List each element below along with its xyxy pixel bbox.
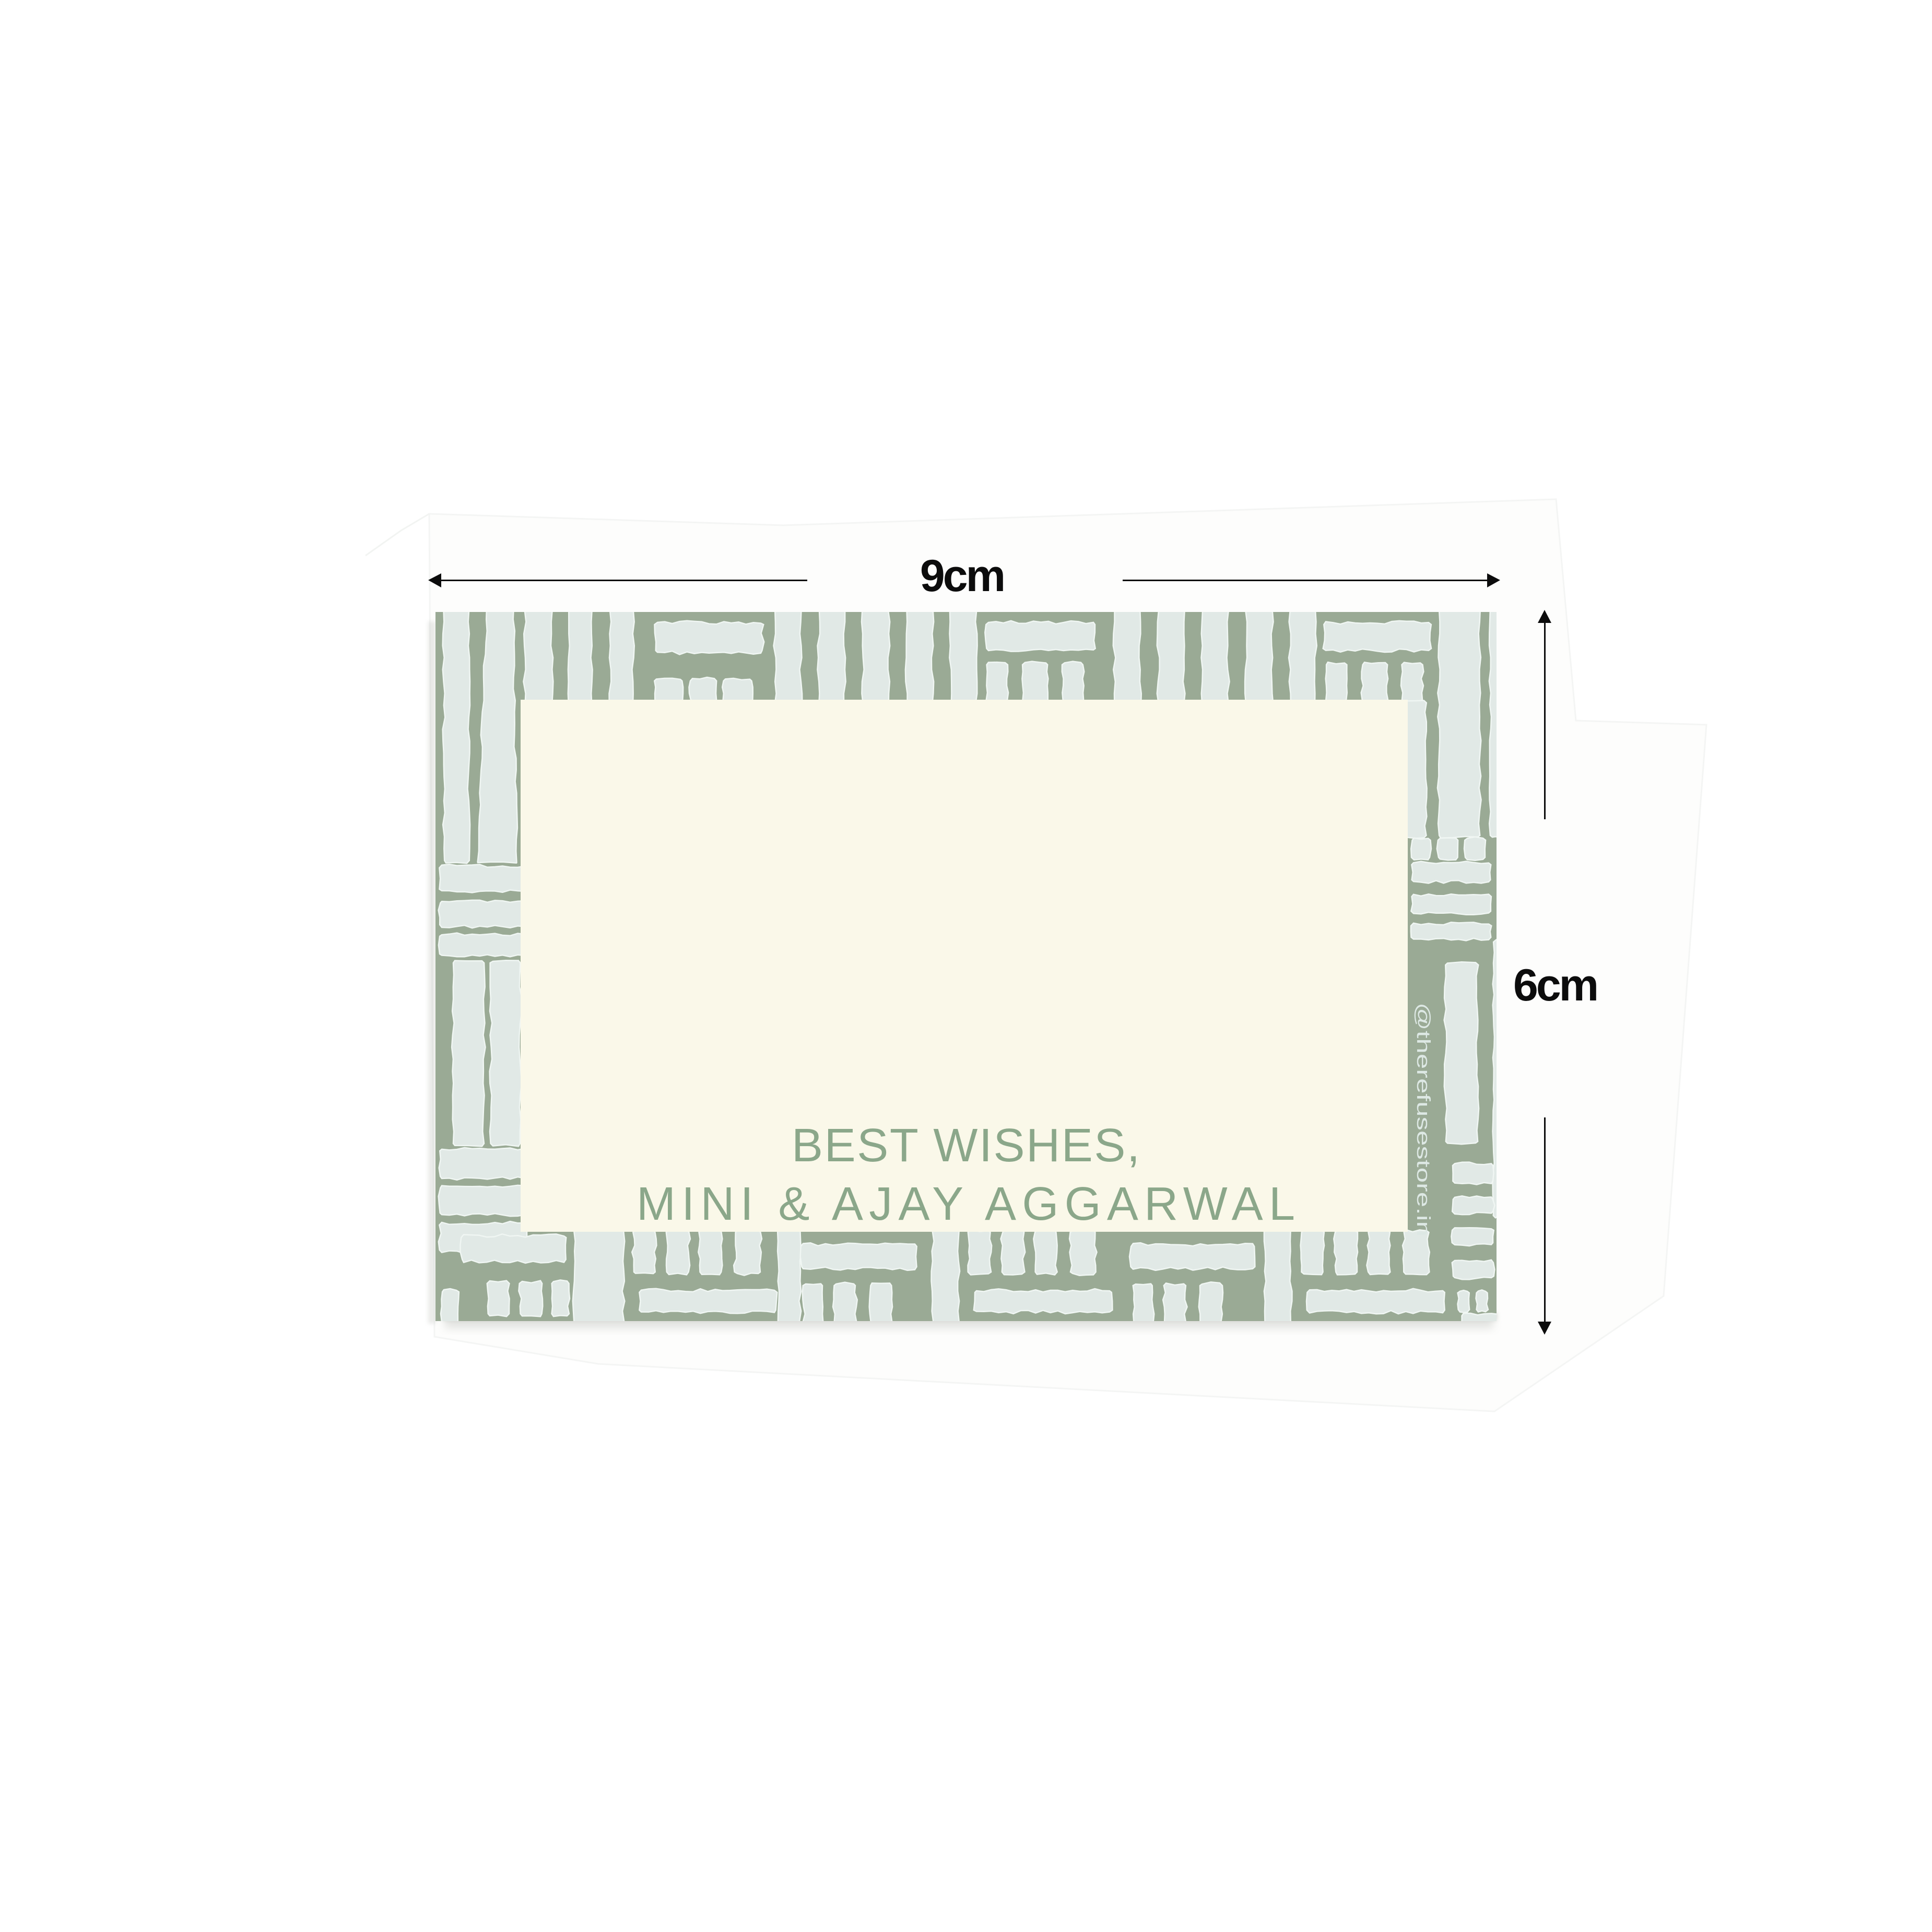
- svg-text:6cm: 6cm: [1513, 960, 1597, 1010]
- svg-text:@therefusestore.in: @therefusestore.in: [1413, 1003, 1434, 1236]
- svg-text:9cm: 9cm: [920, 551, 1004, 601]
- svg-text:BEST WISHES,: BEST WISHES,: [792, 1120, 1140, 1172]
